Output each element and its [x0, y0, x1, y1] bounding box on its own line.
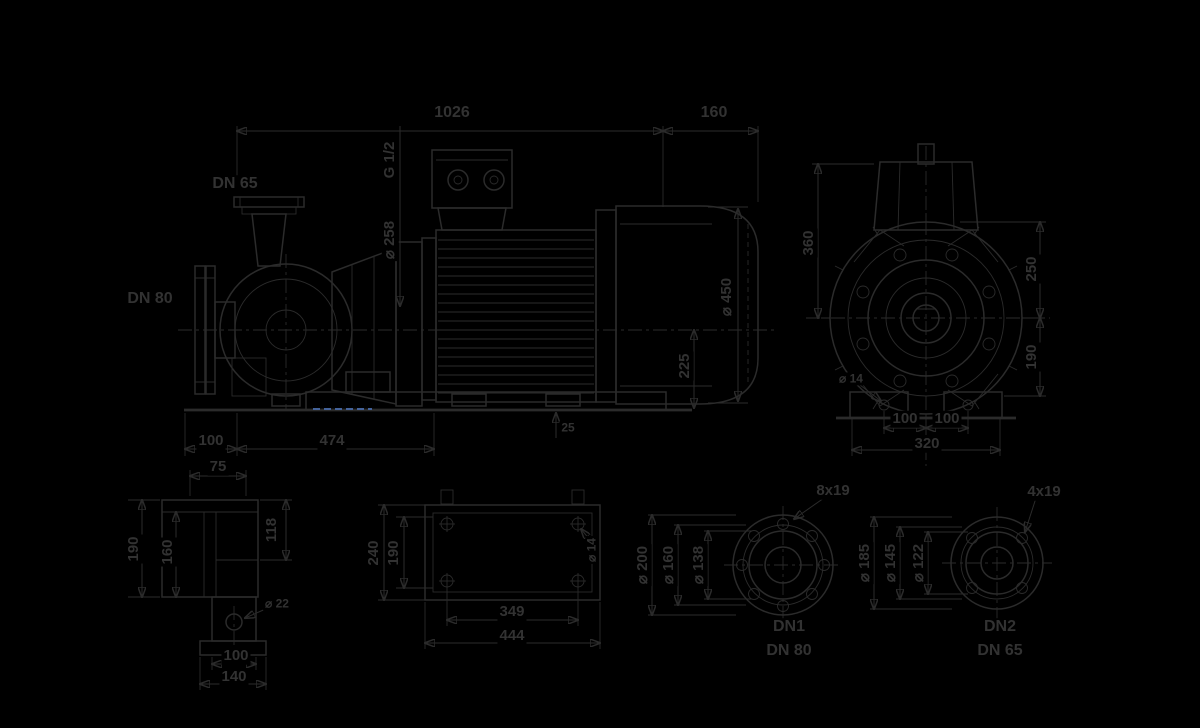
dim-casing-dia: ⌀ 258	[382, 219, 399, 261]
label-discharge-dn65: DN 65	[210, 175, 259, 193]
dim-end-foot-left: 100	[890, 411, 919, 428]
dim-end-foot-total: 320	[912, 436, 941, 453]
drawing-canvas	[0, 0, 1200, 728]
callout-flange2-bolt-holes: 4x19	[1025, 484, 1062, 501]
leader-bolt-holes	[794, 498, 824, 519]
label-vent-port: G 1/2	[382, 140, 399, 181]
bearing-bracket	[332, 242, 422, 406]
label-flange1-port: DN1	[771, 618, 807, 636]
discharge-flange	[234, 197, 304, 266]
pump-dimensional-drawing: 1026 160 DN 65 DN 80 G 1/2 ⌀ 258 ⌀ 450 2…	[0, 0, 1200, 728]
dim-flange2-face-dia: ⌀ 122	[911, 542, 928, 584]
ground-hatch	[184, 411, 692, 422]
mounting-holes	[439, 516, 586, 589]
motor-body	[422, 230, 596, 406]
foot-detail-view	[128, 470, 292, 690]
dim-foot-width-top: 75	[208, 459, 229, 476]
label-suction-dn80: DN 80	[125, 290, 174, 308]
terminal-box	[432, 150, 512, 230]
label-flange2-size: DN 65	[975, 642, 1024, 660]
dim-end-axis-to-top: 360	[801, 228, 818, 257]
stud	[572, 490, 584, 504]
end-view	[806, 144, 1050, 466]
baseplate-plan-view	[378, 490, 600, 649]
callout-end-foot-hole: ⌀ 14	[837, 372, 865, 385]
label-flange1-size: DN 80	[764, 642, 813, 660]
dim-foot-span: 474	[317, 433, 346, 450]
dim-plate-height-inner: 190	[386, 538, 403, 567]
dim-fan-overhang: 160	[699, 104, 730, 122]
dim-flange2-bolt-circle: ⌀ 145	[883, 542, 900, 584]
dim-flange2-outer-dia: ⌀ 185	[857, 542, 874, 584]
leader-bolt-holes	[1025, 498, 1036, 532]
callout-plate-hole: ⌀ 14	[585, 536, 598, 564]
side-view	[178, 126, 778, 456]
cable-gland	[484, 170, 504, 190]
dim-end-axis-to-foot: 190	[1024, 342, 1041, 371]
dim-fan-dia: ⌀ 450	[719, 276, 736, 318]
callout-flange1-bolt-holes: 8x19	[814, 483, 851, 500]
dim-foot-offset: 100	[196, 433, 225, 450]
dim-axis-to-base: 225	[677, 351, 694, 380]
dim-plate-height: 25	[559, 421, 576, 434]
dim-foot-height-inner: 160	[160, 537, 177, 566]
dim-end-foot-right: 100	[932, 411, 961, 428]
dim-foot-height-right: 118	[264, 516, 281, 544]
leader-foot-hole	[860, 385, 881, 401]
dim-foot-base-outer: 140	[219, 669, 248, 686]
dim-total-length: 1026	[432, 104, 472, 122]
dim-end-top-to-axis: 250	[1024, 254, 1041, 283]
cable-gland	[448, 170, 468, 190]
dim-plate-length-inner: 349	[497, 604, 526, 621]
dim-foot-height-outer: 190	[126, 534, 143, 563]
dim-flange1-bolt-circle: ⌀ 160	[661, 544, 678, 586]
dim-flange1-face-dia: ⌀ 138	[691, 544, 708, 586]
dim-foot-base-inner: 100	[221, 648, 250, 665]
label-flange2-port: DN2	[982, 618, 1018, 636]
dim-plate-height-outer: 240	[366, 538, 383, 567]
stud	[441, 490, 453, 504]
dim-plate-length-outer: 444	[497, 628, 526, 645]
dim-flange1-outer-dia: ⌀ 200	[635, 544, 652, 586]
callout-foot-hole: ⌀ 22	[263, 597, 291, 610]
